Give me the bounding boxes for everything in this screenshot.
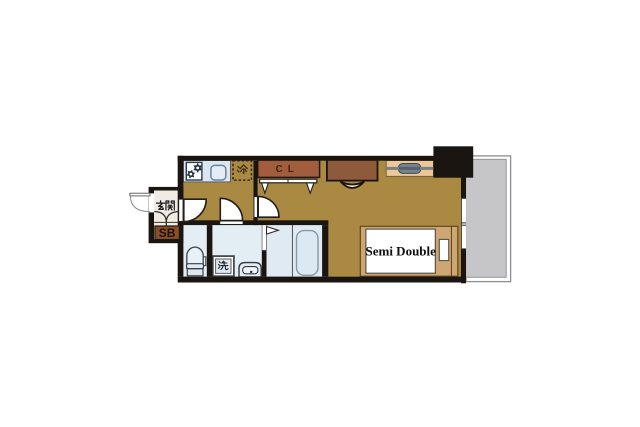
svg-text:SB: SB [159,226,176,240]
svg-text:Semi Double: Semi Double [365,244,436,259]
svg-text:C L: C L [276,164,295,175]
